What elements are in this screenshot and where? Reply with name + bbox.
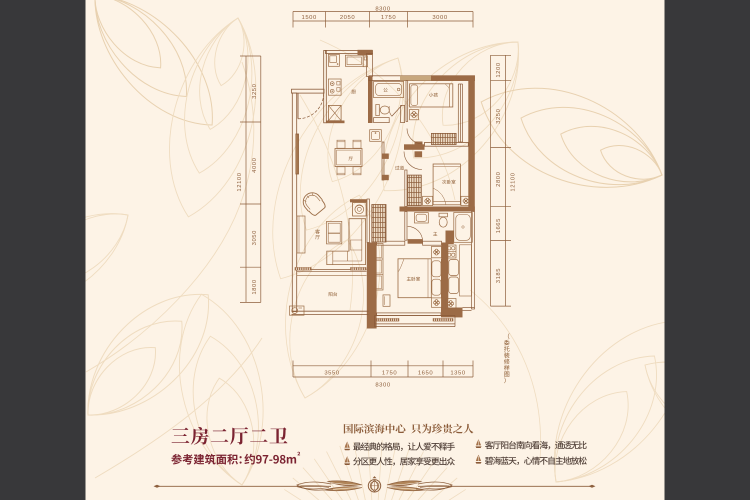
svg-text:3550: 3550 <box>324 371 339 377</box>
svg-text:3000: 3000 <box>432 15 447 21</box>
svg-text:3250: 3250 <box>496 108 502 123</box>
svg-text:1750: 1750 <box>382 371 397 377</box>
svg-text:1665: 1665 <box>496 218 502 233</box>
svg-text:4000: 4000 <box>252 157 258 172</box>
svg-text:1650: 1650 <box>418 371 433 377</box>
svg-text:12100: 12100 <box>511 172 517 191</box>
svg-text:12100: 12100 <box>237 172 243 191</box>
svg-text:1500: 1500 <box>302 15 317 21</box>
svg-text:2050: 2050 <box>340 15 355 21</box>
svg-text:3185: 3185 <box>496 268 502 283</box>
svg-text:1750: 1750 <box>381 15 396 21</box>
svg-text:3250: 3250 <box>252 83 258 98</box>
svg-text:8300: 8300 <box>375 382 390 388</box>
svg-text:3050: 3050 <box>252 230 258 245</box>
svg-text:8300: 8300 <box>375 6 390 12</box>
svg-text:1350: 1350 <box>450 371 465 377</box>
svg-text:1800: 1800 <box>252 279 258 294</box>
svg-text:2800: 2800 <box>496 171 502 186</box>
svg-text:1200: 1200 <box>496 62 502 77</box>
